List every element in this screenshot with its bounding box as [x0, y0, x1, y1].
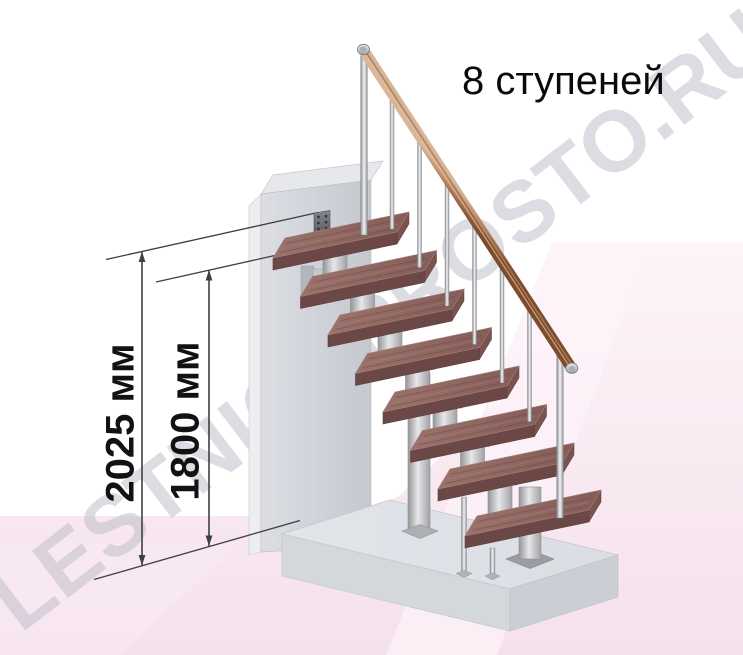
staircase-diagram: LESTNICAPROSTO.RU 8 ступеней 2025 мм 180… — [0, 0, 743, 655]
dimension-label-1800: 1800 мм — [164, 341, 209, 500]
dimension-label-2025: 2025 мм — [99, 343, 144, 502]
page-title: 8 ступеней — [462, 59, 665, 104]
